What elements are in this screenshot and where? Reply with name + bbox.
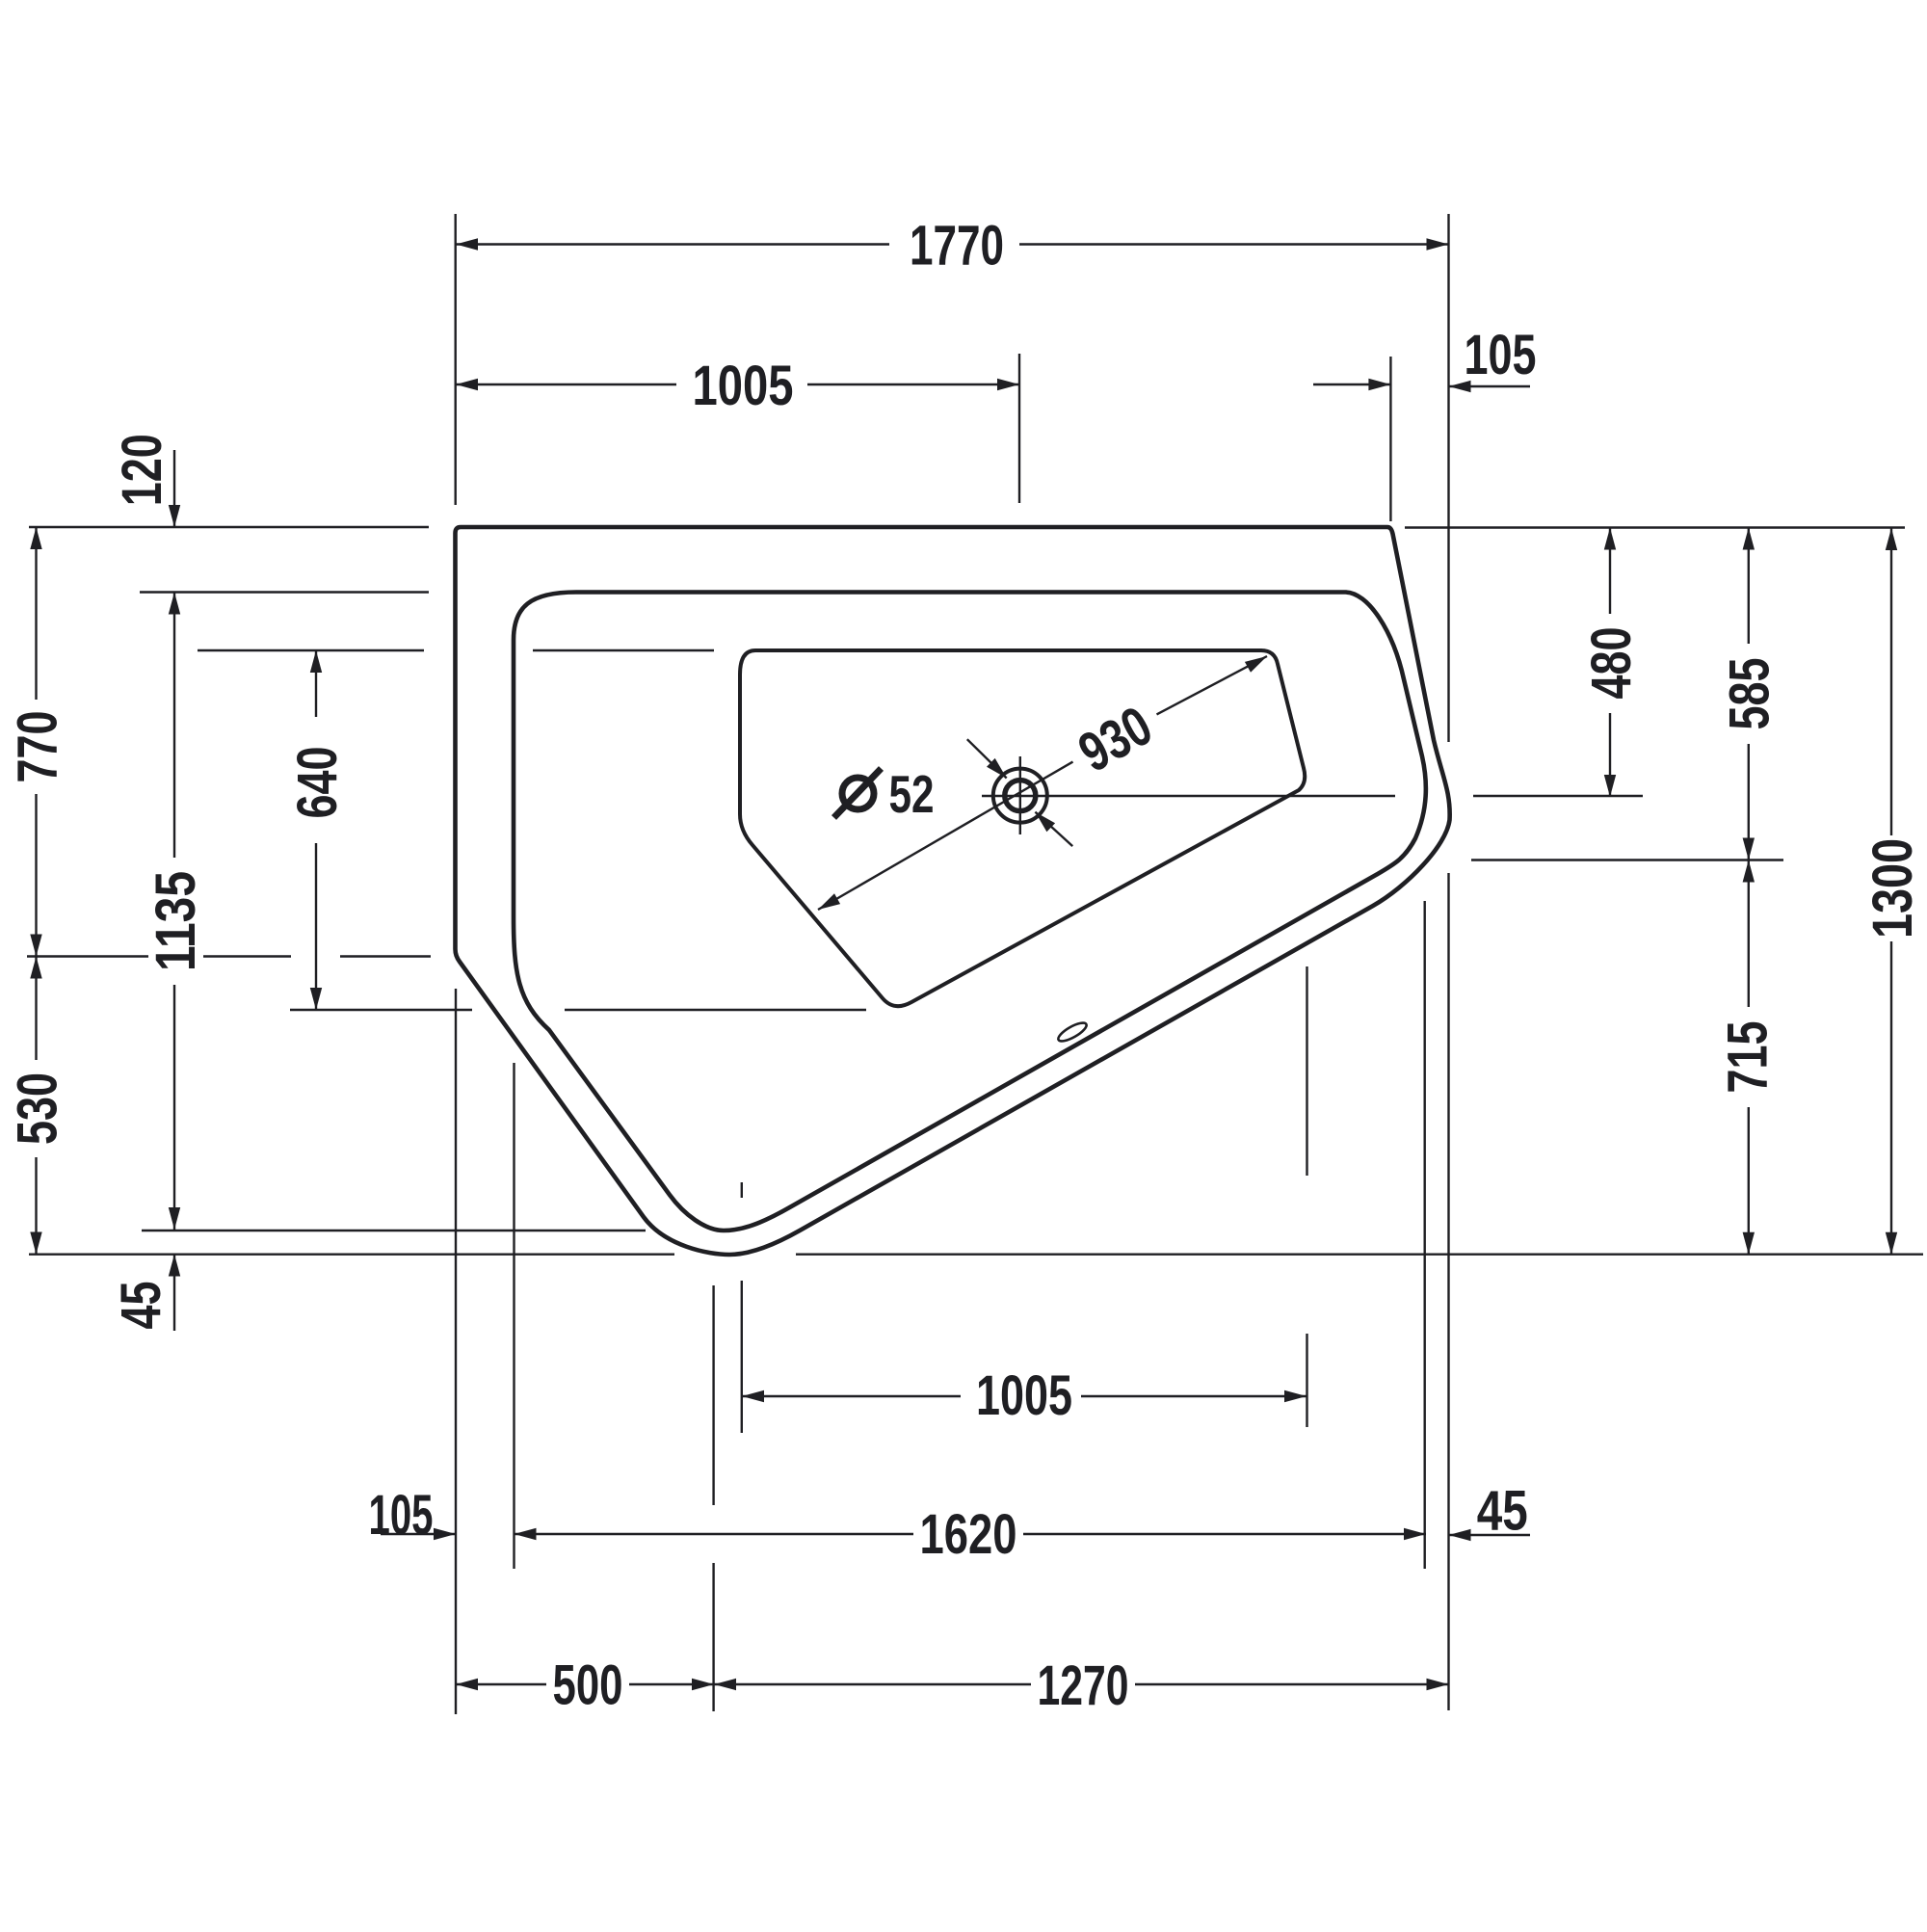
svg-text:640: 640 (286, 747, 349, 819)
svg-text:930: 930 (1069, 694, 1162, 783)
svg-text:1270: 1270 (1038, 1654, 1129, 1717)
svg-text:500: 500 (553, 1654, 623, 1716)
svg-text:1300: 1300 (1861, 838, 1924, 939)
svg-text:120: 120 (111, 434, 173, 506)
svg-text:1005: 1005 (693, 355, 794, 417)
svg-text:1135: 1135 (145, 871, 207, 971)
svg-text:45: 45 (110, 1282, 172, 1330)
svg-text:715: 715 (1716, 1021, 1779, 1094)
svg-text:105: 105 (369, 1484, 434, 1547)
svg-text:45: 45 (1477, 1479, 1528, 1542)
svg-text:105: 105 (1465, 324, 1537, 386)
svg-text:1770: 1770 (910, 214, 1004, 277)
svg-text:1620: 1620 (920, 1503, 1017, 1566)
svg-text:530: 530 (6, 1072, 68, 1145)
svg-text:480: 480 (1580, 627, 1643, 700)
svg-text:52: 52 (889, 764, 935, 824)
svg-text:585: 585 (1719, 658, 1782, 730)
svg-text:1005: 1005 (976, 1364, 1072, 1427)
svg-text:770: 770 (6, 711, 68, 783)
